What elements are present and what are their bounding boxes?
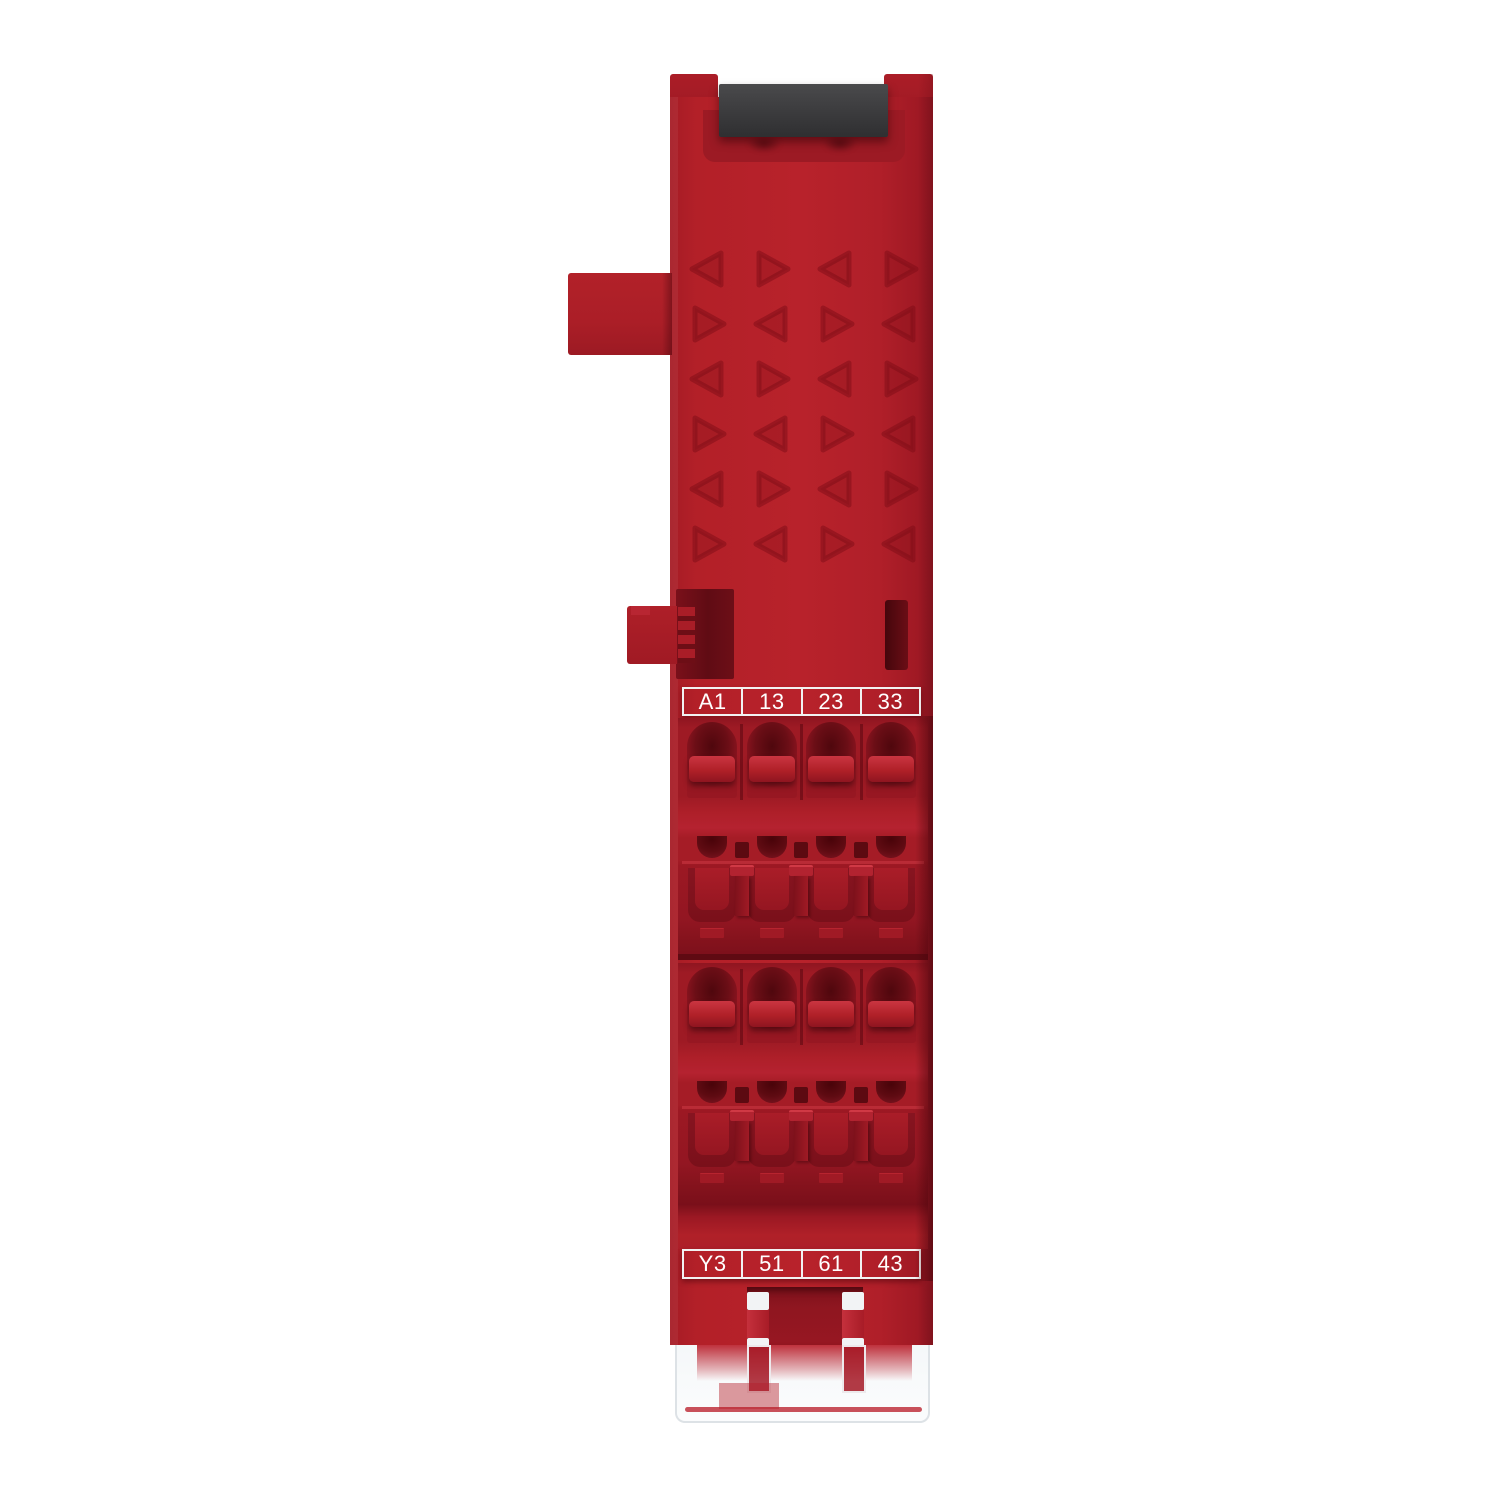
snap-clip-right-body <box>842 1310 864 1338</box>
terminal-divider <box>860 969 863 1045</box>
terminal-clamp-lever <box>749 756 795 782</box>
clamp-panel <box>688 1113 736 1167</box>
clamp-tongue <box>814 1113 848 1155</box>
lower-face-band <box>678 1205 928 1249</box>
terminal-label-23: 23 <box>803 689 862 714</box>
terminal-arch <box>747 722 797 798</box>
clamp-panel <box>748 868 796 922</box>
release-latch-step <box>631 606 650 615</box>
terminal-clamp-lever <box>749 1001 795 1027</box>
terminal-arch <box>806 722 856 798</box>
clamp-foot <box>700 1173 724 1183</box>
test-notch <box>794 842 808 858</box>
wire-hole <box>816 836 846 858</box>
clamp-tongue <box>755 868 789 910</box>
terminal-label-13: 13 <box>743 689 802 714</box>
terminal-divider <box>800 724 803 800</box>
clamp-stem-cap <box>730 865 754 876</box>
product-photo: A1 13 23 33 <box>0 0 1500 1500</box>
snap-clip-left-body <box>747 1310 769 1338</box>
clamp-panel <box>807 868 855 922</box>
terminal-label-strip-bottom: Y3 51 61 43 <box>682 1249 921 1279</box>
wire-hole <box>757 836 787 858</box>
clamp-foot <box>819 1173 843 1183</box>
snap-clip-left-top <box>747 1292 769 1310</box>
terminal-arch <box>747 967 797 1043</box>
terminal-clamp-lever <box>868 756 914 782</box>
wire-hole <box>757 1081 787 1103</box>
clear-base-red-step <box>719 1383 779 1409</box>
clamp-foot <box>700 928 724 938</box>
terminal-arch <box>687 967 737 1043</box>
test-notch <box>854 842 868 858</box>
terminal-block-lower <box>678 963 928 1205</box>
clamp-panel <box>867 1113 915 1167</box>
clip-recess-shadow-left <box>741 134 787 158</box>
clamp-foot <box>819 928 843 938</box>
terminal-divider <box>740 969 743 1045</box>
terminal-label-61: 61 <box>803 1251 862 1277</box>
clamp-stem-cap <box>789 865 813 876</box>
release-latch-ridges <box>678 607 695 663</box>
snap-clip-right-top <box>842 1292 864 1310</box>
wire-hole <box>697 1081 727 1103</box>
clamp-panel <box>807 1113 855 1167</box>
clear-base-red-edge <box>685 1407 922 1412</box>
clamp-panel <box>867 868 915 922</box>
marking-slot <box>885 600 908 670</box>
clamp-stem <box>735 1121 749 1161</box>
clamp-stem <box>854 1121 868 1161</box>
clamp-stem <box>735 876 749 916</box>
clear-base <box>675 1345 930 1423</box>
clamp-stem-cap <box>789 1110 813 1121</box>
terminal-clamp-lever <box>868 1001 914 1027</box>
terminal-label-51: 51 <box>743 1251 802 1277</box>
clamp-tongue <box>755 1113 789 1155</box>
clamp-stem-cap <box>730 1110 754 1121</box>
clamp-shelf-edge <box>682 861 924 864</box>
terminal-arch <box>806 967 856 1043</box>
din-clip-black <box>719 84 888 137</box>
clamp-foot <box>879 1173 903 1183</box>
terminal-divider <box>800 969 803 1045</box>
clamp-shelf-edge <box>682 1106 924 1109</box>
clamp-tongue <box>874 1113 908 1155</box>
terminal-arch <box>687 722 737 798</box>
test-notch <box>735 842 749 858</box>
terminal-divider <box>860 724 863 800</box>
terminal-label-y3: Y3 <box>684 1251 743 1277</box>
terminal-label-33: 33 <box>862 689 919 714</box>
side-tab <box>568 273 672 355</box>
clamp-stem <box>794 876 808 916</box>
clear-base-red-core <box>697 1345 912 1381</box>
clear-base-clip-right <box>842 1345 866 1393</box>
clamp-foot <box>760 928 784 938</box>
test-notch <box>854 1087 868 1103</box>
side-tab-seam <box>662 273 672 355</box>
clamp-stem-cap <box>849 1110 873 1121</box>
wire-hole <box>876 1081 906 1103</box>
molded-triangle-pattern <box>684 248 924 578</box>
clamp-tongue <box>695 1113 729 1155</box>
terminal-label-strip-top: A1 13 23 33 <box>682 687 921 716</box>
wire-hole <box>697 836 727 858</box>
triangle-pattern-svg <box>684 248 924 578</box>
terminal-arch <box>866 722 916 798</box>
clamp-foot <box>760 1173 784 1183</box>
clamp-stem <box>854 876 868 916</box>
clamp-tongue <box>695 868 729 910</box>
clamp-stem <box>794 1121 808 1161</box>
clamp-foot <box>879 928 903 938</box>
clamp-tongue <box>874 868 908 910</box>
wire-hole <box>816 1081 846 1103</box>
test-notch <box>735 1087 749 1103</box>
terminal-clamp-lever <box>808 756 854 782</box>
safety-relay-module: A1 13 23 33 <box>0 0 1500 1500</box>
clamp-panel <box>688 868 736 922</box>
terminal-arch <box>866 967 916 1043</box>
terminal-block-upper <box>678 718 928 960</box>
terminal-label-43: 43 <box>862 1251 919 1277</box>
terminal-block-separator <box>678 954 928 960</box>
clip-recess-shadow-right <box>817 134 863 158</box>
test-notch <box>794 1087 808 1103</box>
terminal-clamp-lever <box>689 756 735 782</box>
wire-hole <box>876 836 906 858</box>
terminal-label-a1: A1 <box>684 689 743 714</box>
clamp-stem-cap <box>849 865 873 876</box>
terminal-clamp-lever <box>689 1001 735 1027</box>
clamp-tongue <box>814 868 848 910</box>
terminal-divider <box>740 724 743 800</box>
terminal-clamp-lever <box>808 1001 854 1027</box>
clamp-panel <box>748 1113 796 1167</box>
